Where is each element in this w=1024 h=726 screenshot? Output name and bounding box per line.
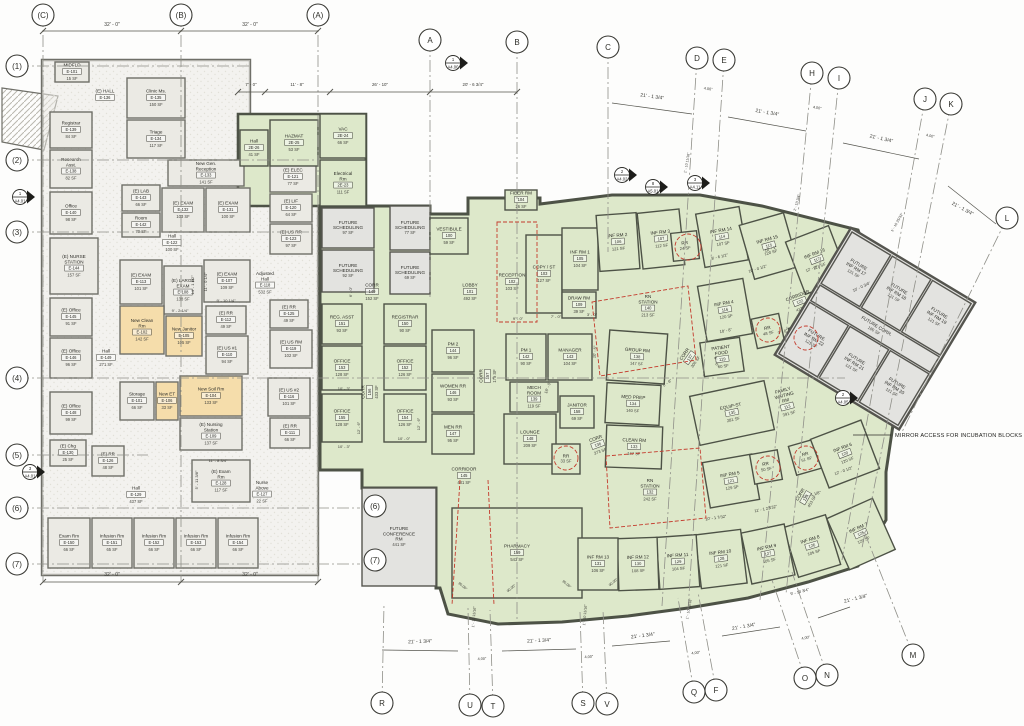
svg-text:M: M — [910, 651, 917, 660]
room-office: OfficeE-14098 SF — [50, 192, 92, 234]
svg-text:90 SF: 90 SF — [400, 328, 411, 333]
room-lobby: LOBBY101492 SF — [462, 283, 477, 301]
svg-text:INF RM 12: INF RM 12 — [627, 554, 650, 560]
svg-text:Infusion Rm: Infusion Rm — [226, 534, 251, 539]
svg-text:A4.02: A4.02 — [617, 177, 629, 182]
svg-text:(E) Chg: (E) Chg — [60, 444, 76, 449]
svg-text:(E) ELEC: (E) ELEC — [283, 168, 303, 173]
room-triage: TriageE-134117 SF — [127, 120, 185, 158]
room-e-rr: (E) RRE-12648 SF — [92, 446, 124, 476]
svg-text:K: K — [948, 100, 954, 109]
floor-plan-sheet: MIDFLDE-10115 SF(E) HALLE-136Clinic Ms.E… — [0, 0, 1024, 726]
svg-text:E-128: E-128 — [216, 481, 228, 486]
svg-text:CLEAN RM: CLEAN RM — [622, 437, 646, 443]
svg-text:145: 145 — [461, 473, 469, 478]
svg-text:(E) Office: (E) Office — [61, 404, 81, 409]
svg-text:Above: Above — [255, 485, 268, 490]
svg-text:A4.00: A4.00 — [448, 65, 460, 70]
dimension-text-7: 32' - 0" — [242, 572, 258, 578]
svg-text:LOUNGE: LOUNGE — [520, 430, 539, 435]
svg-text:106 SF: 106 SF — [591, 568, 605, 573]
svg-text:I: I — [838, 74, 840, 83]
svg-text:E-139: E-139 — [66, 127, 78, 132]
svg-text:(E) US #2: (E) US #2 — [279, 388, 300, 393]
grid-bubble-t-24: T — [482, 695, 504, 717]
dimension-text-41: 10' - 0" — [398, 436, 411, 441]
svg-text:OFFICE: OFFICE — [334, 409, 351, 414]
dimension-text-9: 4.00" — [704, 86, 714, 91]
svg-text:Rm: Rm — [138, 323, 145, 328]
svg-text:E-143: E-143 — [136, 195, 148, 200]
svg-text:(4): (4) — [12, 374, 22, 383]
room-janitor: JANITOR15869 SF — [560, 396, 594, 428]
svg-text:213 SF: 213 SF — [641, 313, 655, 318]
svg-text:92 SF: 92 SF — [343, 273, 354, 278]
dimension-text-30: 1' - 10 25/32" — [890, 212, 904, 233]
svg-text:CORRIDOR: CORRIDOR — [451, 467, 477, 472]
svg-text:A4.01: A4.01 — [15, 199, 27, 204]
svg-text:(E) EXAM: (E) EXAM — [173, 201, 194, 206]
svg-text:84 SF: 84 SF — [66, 134, 77, 139]
dimension-text-18: 4.00" — [584, 655, 594, 660]
room-med-prep: MED PREP134140 SF — [605, 383, 661, 426]
svg-text:H: H — [809, 69, 815, 78]
svg-text:132: 132 — [647, 490, 655, 495]
svg-text:94 SF: 94 SF — [222, 359, 233, 364]
room-e-us-1: (E) US #1E-11094 SF — [206, 336, 248, 374]
svg-text:Hall: Hall — [168, 234, 176, 239]
svg-text:New Soil Rm: New Soil Rm — [198, 387, 225, 392]
svg-text:108 SF: 108 SF — [632, 568, 646, 573]
room-clean-rm: CLEAN RM133147 SF — [605, 425, 662, 469]
svg-text:152: 152 — [402, 365, 410, 370]
dimension-text-34: 9' - 10 1/4" — [216, 298, 236, 303]
svg-text:131: 131 — [595, 561, 603, 566]
svg-text:Rm: Rm — [339, 176, 346, 181]
floor-plan-canvas: MIDFLDE-10115 SF(E) HALLE-136Clinic Ms.E… — [0, 0, 1024, 726]
svg-text:144: 144 — [450, 348, 458, 353]
svg-text:(E) Office: (E) Office — [61, 349, 81, 354]
dimension-text-37: 10' - 3" — [338, 386, 351, 391]
room-e-exam: (E) EXAME-113101 SF — [120, 260, 162, 304]
svg-text:VAC: VAC — [338, 127, 348, 132]
svg-text:103 SF: 103 SF — [176, 214, 190, 219]
svg-text:119 SF: 119 SF — [528, 404, 541, 409]
svg-text:(E) US #1: (E) US #1 — [217, 346, 238, 351]
room-e-us-rm: (E) US RME-119102 SF — [270, 330, 312, 368]
grid-bubble-b-13: B — [506, 31, 528, 53]
room-new-gen-reception: New Gen.ReceptionE-133141 SF — [168, 160, 244, 186]
svg-text:126 SF: 126 SF — [398, 372, 412, 377]
svg-text:130: 130 — [634, 561, 642, 566]
svg-text:121 SF: 121 SF — [612, 246, 626, 252]
grid-bubble-i-18: I — [828, 67, 850, 89]
svg-text:82 SF: 82 SF — [66, 176, 77, 181]
svg-text:WOMEN RR: WOMEN RR — [440, 384, 467, 389]
svg-text:E-126: E-126 — [103, 458, 115, 463]
svg-text:101: 101 — [467, 289, 475, 294]
svg-text:INF RM 13: INF RM 13 — [587, 555, 610, 560]
grid-bubble-h-17: H — [801, 62, 823, 84]
room-e-rr: (E) RRE-12549 SF — [270, 300, 308, 328]
section-marker-a4-11-3: 3A4.11 — [688, 176, 711, 191]
dimension-text-12: 21' - 1 3/4" — [869, 133, 894, 144]
room-e-office: (E) OfficeE-14696 SF — [50, 338, 92, 378]
svg-text:117 SF: 117 SF — [215, 488, 228, 493]
svg-text:98 SF: 98 SF — [66, 217, 77, 222]
svg-text:105: 105 — [577, 256, 585, 261]
room-corr: CORR156433 SF — [361, 385, 379, 399]
room-inf-rm-11: INF RM 11129104 SF — [656, 535, 700, 590]
svg-text:156: 156 — [367, 388, 372, 396]
dimension-text-5: 20' - 6 3/4" — [463, 82, 484, 87]
svg-text:E-132: E-132 — [178, 207, 190, 212]
svg-text:102: 102 — [509, 279, 517, 284]
dimension-text-23: 21' - 1 3/4" — [843, 593, 868, 605]
svg-text:STATION: STATION — [638, 299, 657, 304]
dimension-text-19: 21' - 1 3/4" — [631, 632, 656, 641]
mirror-access-note: MIRROR ACCESS FOR INCUBATION BLOCKS — [895, 433, 1022, 439]
room-future-scheduling: FUTURESCHEDULING97 SF — [322, 208, 374, 248]
grid-bubble-b-1: (B) — [170, 4, 192, 26]
svg-text:95 SF: 95 SF — [448, 438, 459, 443]
room-new-et: New ETE-10633 SF — [156, 382, 178, 420]
svg-text:49 SF: 49 SF — [221, 324, 232, 329]
svg-text:100: 100 — [446, 233, 454, 238]
dimension-line-5 — [843, 143, 919, 159]
svg-text:Q: Q — [691, 688, 697, 697]
svg-text:E-154: E-154 — [233, 540, 245, 545]
svg-text:REG. ASST: REG. ASST — [330, 315, 354, 320]
dimension-text-3: 11' - 8" — [290, 82, 304, 87]
svg-text:140 SF: 140 SF — [626, 408, 640, 414]
room-e-chg: (E) ChgE-13025 SF — [50, 440, 86, 466]
svg-text:U: U — [467, 701, 473, 710]
dimension-text-8: 21' - 1 3/4" — [640, 92, 665, 101]
svg-text:48 SF: 48 SF — [103, 465, 114, 470]
room-fiber-rm: FIBER RM10426 SF — [505, 190, 537, 210]
svg-text:77 SF: 77 SF — [288, 181, 299, 186]
svg-text:INF RM 1: INF RM 1 — [570, 250, 590, 255]
svg-text:OFFICE: OFFICE — [397, 359, 414, 364]
svg-text:B: B — [514, 38, 519, 47]
svg-text:103: 103 — [541, 271, 549, 276]
grid-bubble-d-15: D — [686, 47, 708, 69]
svg-text:(E) RR: (E) RR — [219, 311, 234, 316]
svg-text:(E) EXAM: (E) EXAM — [131, 273, 152, 278]
svg-text:66 SF: 66 SF — [136, 202, 147, 207]
svg-text:96 SF: 96 SF — [448, 355, 459, 360]
room-new-clean-rm: New CleanRmE-102142 SF — [120, 306, 164, 354]
svg-text:101 SF: 101 SF — [282, 401, 296, 406]
dimension-text-13: 4.00" — [926, 133, 936, 139]
svg-text:149: 149 — [369, 289, 377, 294]
room-e-lab: (E) LABE-14366 SF — [122, 185, 160, 211]
svg-text:433 SF: 433 SF — [374, 385, 379, 399]
svg-text:25 SF: 25 SF — [63, 457, 74, 462]
svg-text:150 SF: 150 SF — [149, 102, 163, 107]
svg-text:22 SF: 22 SF — [257, 499, 268, 504]
svg-text:DRAW RM: DRAW RM — [568, 296, 590, 301]
svg-text:(2): (2) — [12, 156, 22, 165]
svg-text:FIBER RM: FIBER RM — [510, 191, 532, 196]
svg-text:175 SF: 175 SF — [492, 369, 497, 383]
room-copy-st: COPY / ST103127 SF — [526, 235, 562, 313]
svg-text:97 SF: 97 SF — [286, 243, 297, 248]
grid-bubble-2-4: (2) — [6, 149, 28, 171]
dimension-text-35: 11' - 8 3/4" — [209, 458, 228, 463]
dimension-text-36: 5' - 11 3/8" — [194, 470, 199, 489]
svg-text:141 SF: 141 SF — [199, 180, 213, 185]
dimension-text-14: 21' - 1 3/4" — [951, 201, 975, 218]
svg-text:E-104: E-104 — [206, 393, 218, 398]
svg-text:VESTIBULE: VESTIBULE — [436, 227, 461, 232]
room-inf-rm-10: INF RM 10128121 SF — [695, 529, 747, 588]
svg-text:91 SF: 91 SF — [66, 321, 77, 326]
dimension-text-0: 32' - 0" — [104, 22, 120, 28]
svg-text:MIDFLD: MIDFLD — [63, 63, 81, 68]
svg-text:104 SF: 104 SF — [672, 566, 686, 572]
grid-bubble-j-19: J — [914, 88, 936, 110]
svg-text:E-129: E-129 — [131, 492, 143, 497]
grid-bubble-f-28: F — [705, 679, 727, 701]
room-e-large-exam: (E) LARGEEXAME-108138 SF — [164, 266, 202, 314]
svg-text:STATION: STATION — [64, 259, 83, 264]
svg-text:102 SF: 102 SF — [284, 353, 298, 358]
svg-text:E-135: E-135 — [151, 95, 163, 100]
svg-text:128 SF: 128 SF — [335, 372, 349, 377]
room-inf-rm-2: INF RM 2106121 SF — [596, 213, 640, 272]
svg-text:E-131: E-131 — [223, 207, 235, 212]
svg-text:138: 138 — [633, 354, 641, 360]
svg-text:New Janitor: New Janitor — [172, 327, 197, 332]
svg-text:E-109: E-109 — [206, 434, 218, 439]
svg-text:109: 109 — [576, 302, 584, 307]
svg-text:93 SF: 93 SF — [448, 397, 459, 402]
svg-text:66 SF: 66 SF — [149, 547, 160, 552]
svg-text:Hall: Hall — [132, 486, 140, 491]
dimension-text-1: 32' - 0" — [242, 22, 258, 28]
svg-text:90 SF: 90 SF — [521, 361, 532, 366]
svg-text:OFFICE: OFFICE — [397, 409, 414, 414]
svg-text:(B): (B) — [176, 11, 187, 20]
svg-text:146: 146 — [450, 390, 458, 395]
svg-text:105 SF: 105 SF — [177, 340, 191, 345]
svg-text:New ET: New ET — [159, 392, 176, 397]
svg-text:C: C — [605, 43, 611, 52]
grid-bubble-6-8: (6) — [6, 497, 28, 519]
svg-text:66 SF: 66 SF — [285, 437, 296, 442]
svg-text:Infusion Rm: Infusion Rm — [184, 534, 209, 539]
dimension-text-28: 1' - 10 11/16" — [683, 151, 691, 173]
svg-text:E-112: E-112 — [221, 317, 232, 322]
svg-text:117 SF: 117 SF — [150, 143, 163, 148]
svg-text:492 SF: 492 SF — [463, 296, 477, 301]
svg-text:A5.01: A5.01 — [648, 189, 660, 194]
room-e-office: (E) OfficeE-14591 SF — [50, 298, 92, 336]
dimension-text-16: 4.00" — [478, 657, 488, 661]
dimension-text-31: 14' - 1 1/2" — [190, 275, 195, 295]
svg-text:147 SF: 147 SF — [630, 361, 644, 367]
svg-text:E-111: E-111 — [285, 430, 296, 435]
svg-text:59 SF: 59 SF — [444, 240, 455, 245]
section-marker-a4-00-1: 1A4.00 — [446, 56, 469, 71]
svg-text:93 SF: 93 SF — [337, 328, 348, 333]
grid-bubble-1-3: (1) — [6, 55, 28, 77]
svg-text:E: E — [721, 56, 726, 65]
dimension-line-9 — [612, 641, 670, 646]
dimension-text-32: 11' - 0 1/4" — [203, 272, 208, 291]
svg-text:66 SF: 66 SF — [338, 140, 349, 145]
room-e-nursing-station: (E) NursingStationE-109137 SF — [180, 418, 242, 450]
grid-bubble-a-2: (A) — [307, 4, 329, 26]
room-new-soil-rm: New Soil RmE-104133 SF — [180, 376, 242, 416]
room-corr: CORR149152 SF — [365, 283, 379, 301]
svg-text:Clinic Ms.: Clinic Ms. — [146, 89, 166, 94]
dimension-text-43: 9' - 0" — [513, 316, 524, 321]
svg-text:137 SF: 137 SF — [204, 441, 218, 446]
svg-text:104 SF: 104 SF — [573, 263, 587, 268]
svg-text:33 SF: 33 SF — [162, 405, 173, 410]
svg-text:104: 104 — [518, 197, 526, 202]
svg-text:Registrar: Registrar — [62, 121, 81, 126]
svg-text:E-108: E-108 — [178, 290, 190, 295]
room-research-asst: ResearchAsst.E-13882 SF — [50, 150, 92, 188]
svg-text:66 SF: 66 SF — [191, 547, 202, 552]
svg-text:(7): (7) — [370, 556, 380, 565]
room-e-exam: (E) EXAME-131100 SF — [206, 188, 250, 232]
room-storage: StorageE-10166 SF — [120, 382, 154, 420]
svg-text:133 SF: 133 SF — [204, 400, 218, 405]
svg-text:127 SF: 127 SF — [537, 278, 551, 283]
svg-text:133: 133 — [631, 444, 639, 449]
svg-text:142: 142 — [523, 354, 531, 359]
dimension-text-20: 4.00" — [691, 650, 701, 655]
room-e-us-2: (E) US #2E-116101 SF — [268, 378, 310, 416]
svg-text:Asst.: Asst. — [66, 162, 76, 167]
room-adjusted-hall: AdjustedHallE-118532 SF — [256, 271, 275, 295]
svg-text:OFFICE: OFFICE — [334, 359, 351, 364]
room-office: OFFICE153128 SF — [322, 346, 362, 390]
svg-text:E-133: E-133 — [201, 173, 213, 178]
svg-text:153: 153 — [339, 365, 347, 370]
svg-text:Hall: Hall — [250, 139, 258, 144]
room-e-office: (E) OfficeE-14899 SF — [50, 392, 92, 434]
grid-bubble-c-14: C — [597, 36, 619, 58]
svg-text:106: 106 — [614, 239, 622, 245]
svg-text:(C): (C) — [37, 11, 48, 20]
svg-text:Infusion Rm: Infusion Rm — [142, 534, 167, 539]
svg-text:104 SF: 104 SF — [563, 361, 577, 366]
svg-text:E-125: E-125 — [284, 311, 296, 316]
room-e-exam: (E) EXAME-132103 SF — [162, 188, 204, 232]
svg-text:69 SF: 69 SF — [405, 275, 416, 280]
svg-text:2E-25: 2E-25 — [289, 140, 301, 145]
svg-text:158: 158 — [574, 409, 582, 414]
svg-text:53 SF: 53 SF — [289, 147, 300, 152]
svg-text:150: 150 — [402, 321, 410, 326]
room-group-rm: GROUP RM138147 SF — [606, 330, 667, 384]
svg-text:Reception: Reception — [196, 166, 217, 171]
dimension-text-15: 21' - 1 3/4" — [408, 639, 432, 646]
room-infusion-rm: Infusion RmE-15266 SF — [134, 518, 174, 568]
svg-text:E-120: E-120 — [286, 205, 298, 210]
svg-text:(E) RR: (E) RR — [101, 452, 116, 457]
svg-text:(E) EXAM: (E) EXAM — [217, 272, 238, 277]
svg-text:E-113: E-113 — [136, 279, 147, 284]
room-registrar: RegistrarE-13984 SF — [50, 112, 92, 148]
svg-text:(E) EXAM: (E) EXAM — [218, 201, 239, 206]
svg-text:142 SF: 142 SF — [135, 337, 149, 342]
svg-text:E-122: E-122 — [167, 240, 179, 245]
svg-text:PM 2: PM 2 — [448, 342, 459, 347]
room-e-us-rr: (E) US RRE-12397 SF — [270, 224, 312, 254]
svg-text:151: 151 — [339, 321, 347, 326]
dimension-text-10: 21' - 1 3/4" — [755, 108, 780, 118]
svg-text:Infusion Rm: Infusion Rm — [100, 534, 125, 539]
svg-text:66 SF: 66 SF — [132, 405, 143, 410]
svg-text:E-149: E-149 — [101, 355, 113, 360]
svg-text:242 SF: 242 SF — [643, 497, 657, 502]
dimension-text-42: 6' - 0" — [348, 286, 353, 297]
svg-text:CORR: CORR — [479, 369, 484, 383]
svg-text:(E) Office: (E) Office — [61, 308, 81, 313]
svg-text:(E) LIF: (E) LIF — [284, 199, 298, 204]
svg-text:RECEPTION: RECEPTION — [499, 273, 526, 278]
dimension-line-7 — [382, 650, 458, 651]
svg-text:E-119: E-119 — [286, 346, 297, 351]
dimension-text-2: 7' - 0" — [245, 82, 257, 87]
svg-text:101 SF: 101 SF — [134, 286, 148, 291]
svg-text:Hall: Hall — [102, 349, 110, 354]
room-lounge: LOUNGE148209 SF — [504, 414, 556, 464]
svg-text:77 SF: 77 SF — [405, 230, 416, 235]
dimension-text-33: 9' - 2 1/4" — [172, 308, 189, 313]
svg-text:E-144: E-144 — [69, 266, 81, 271]
svg-text:E-127: E-127 — [257, 492, 269, 497]
svg-text:ROOM: ROOM — [527, 390, 541, 395]
room-corr: CORR157175 SF — [479, 369, 497, 383]
room-electrical-rm: ElectricalRm2E-23111 SF — [320, 160, 366, 206]
svg-text:A4.11: A4.11 — [690, 185, 701, 190]
svg-text:139: 139 — [531, 397, 539, 402]
svg-text:E-138: E-138 — [66, 169, 78, 174]
svg-text:E-151: E-151 — [107, 540, 119, 545]
svg-text:HAZMAT: HAZMAT — [285, 134, 304, 139]
svg-text:143: 143 — [567, 354, 575, 359]
grid-bubble-6-10: (6) — [364, 495, 386, 517]
svg-text:70 SF: 70 SF — [136, 229, 147, 234]
svg-text:128 SF: 128 SF — [335, 422, 349, 427]
dimension-text-22: 4.00" — [801, 635, 811, 641]
dimension-line-8 — [502, 649, 576, 651]
dimension-text-45: 3' - 0" — [587, 312, 598, 317]
room-inf-rm-12: INF RM 12130108 SF — [617, 537, 659, 590]
room-future-scheduling: FUTURESCHEDULING69 SF — [390, 252, 430, 294]
svg-text:E-134: E-134 — [151, 136, 163, 141]
svg-text:69 SF: 69 SF — [572, 416, 583, 421]
svg-text:99 SF: 99 SF — [66, 417, 77, 422]
svg-text:E-148: E-148 — [66, 410, 78, 415]
dimension-line-11 — [818, 607, 850, 618]
svg-text:126 SF: 126 SF — [398, 422, 412, 427]
room-clinic-ms: Clinic Ms.E-135150 SF — [127, 78, 185, 118]
svg-text:109 SF: 109 SF — [220, 285, 234, 290]
svg-text:152 SF: 152 SF — [365, 296, 379, 301]
svg-text:Storage: Storage — [129, 392, 146, 397]
svg-text:E-116: E-116 — [284, 394, 295, 399]
room-registrar: REGISTRAR15090 SF — [384, 304, 426, 344]
